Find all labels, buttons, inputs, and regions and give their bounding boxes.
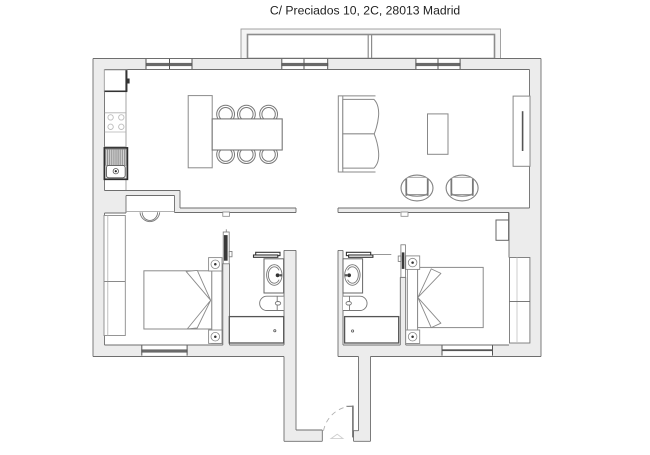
svg-text:C/ Preciados 10, 2C, 28013 Mad: C/ Preciados 10, 2C, 28013 Madrid <box>270 3 460 17</box>
